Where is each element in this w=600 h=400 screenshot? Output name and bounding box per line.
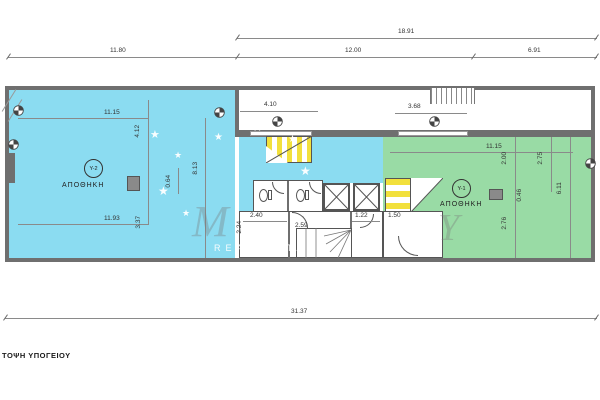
dim-label: 11.93 (104, 216, 120, 223)
dim-label: 2.24 (237, 221, 244, 234)
elevator-x-icon (323, 183, 350, 211)
dim-label: 2.00 (502, 152, 509, 165)
wall-pier (9, 153, 15, 183)
dim-line (352, 221, 380, 222)
room-divider (288, 212, 290, 258)
dim-label: 18.91 (398, 29, 414, 36)
dim-line-top-right (473, 57, 597, 58)
dim-line (148, 100, 149, 225)
dim-line (243, 221, 287, 222)
winder-stair (296, 228, 352, 258)
elevator-x-icon (353, 183, 380, 211)
dim-line-top-mid (237, 57, 473, 58)
stair-flight-right (385, 178, 411, 212)
dim-line-bottom-overall (5, 318, 597, 319)
toilet-icon (259, 189, 268, 202)
dim-line (178, 168, 179, 194)
dim-line (551, 137, 552, 192)
dim-label: 2.75 (538, 152, 545, 165)
room-code-y1: Υ-1 (452, 179, 471, 198)
dim-label: 31.37 (291, 309, 307, 316)
dim-label: 8.13 (193, 162, 200, 175)
dim-line (205, 118, 206, 258)
dim-tick (594, 53, 599, 59)
entry-stair-hatch (430, 88, 475, 104)
column-marker-icon (585, 158, 596, 169)
room-label-y1: ΑΠΟΘΗΚΗ (440, 201, 482, 208)
dim-label: 6.11 (557, 182, 564, 194)
floor-plan-page: 18.91 11.80 12.00 6.91 (0, 0, 600, 400)
dim-line (18, 118, 148, 119)
dim-line (18, 224, 148, 225)
wc-divider (287, 181, 289, 211)
column-marker-icon (272, 116, 283, 127)
stair-cut-line (266, 136, 312, 163)
room-label-y2: ΑΠΟΘΗΚΗ (62, 182, 104, 189)
dim-label: 2.40 (250, 213, 263, 220)
dim-label: 4.12 (135, 125, 142, 138)
structural-column (489, 189, 503, 200)
dim-label: 0.64 (166, 175, 173, 188)
dim-label: 11.80 (110, 48, 126, 55)
dim-label: 2.59 (295, 223, 308, 230)
dim-label: 1.22 (355, 213, 368, 220)
dim-label: 1.50 (388, 213, 401, 220)
toilet-icon (296, 189, 305, 202)
dim-label: 3.37 (136, 216, 143, 229)
toilet-tank-icon (268, 190, 272, 200)
dim-line (395, 113, 467, 114)
dim-label: 12.00 (345, 48, 361, 55)
dim-line-top-left (8, 57, 237, 58)
stair-cut-line (411, 178, 443, 212)
dim-line (570, 137, 571, 258)
dim-line (240, 111, 318, 112)
dim-label: 2.76 (502, 217, 509, 230)
column-marker-icon (13, 105, 24, 116)
dim-label: 11.15 (486, 144, 502, 151)
dim-label: 6.91 (528, 48, 541, 55)
room-code-y2: Υ-2 (84, 159, 103, 178)
dim-line-overall-right (237, 38, 597, 39)
dim-tick (594, 314, 599, 320)
dim-line (390, 152, 573, 153)
column-marker-icon (429, 116, 440, 127)
dim-label: 0.46 (517, 189, 524, 202)
toilet-tank-icon (305, 190, 309, 200)
dim-tick (594, 34, 599, 40)
dim-label: 11.15 (104, 110, 120, 117)
dim-label: 3.68 (408, 104, 421, 111)
column-marker-icon (214, 107, 225, 118)
drawing-title: ΤΟΨΗ ΥΠΟΓΕΙΟΥ (2, 351, 71, 360)
structural-column (127, 176, 140, 191)
dim-label: 4.10 (264, 102, 277, 109)
column-marker-icon (8, 139, 19, 150)
